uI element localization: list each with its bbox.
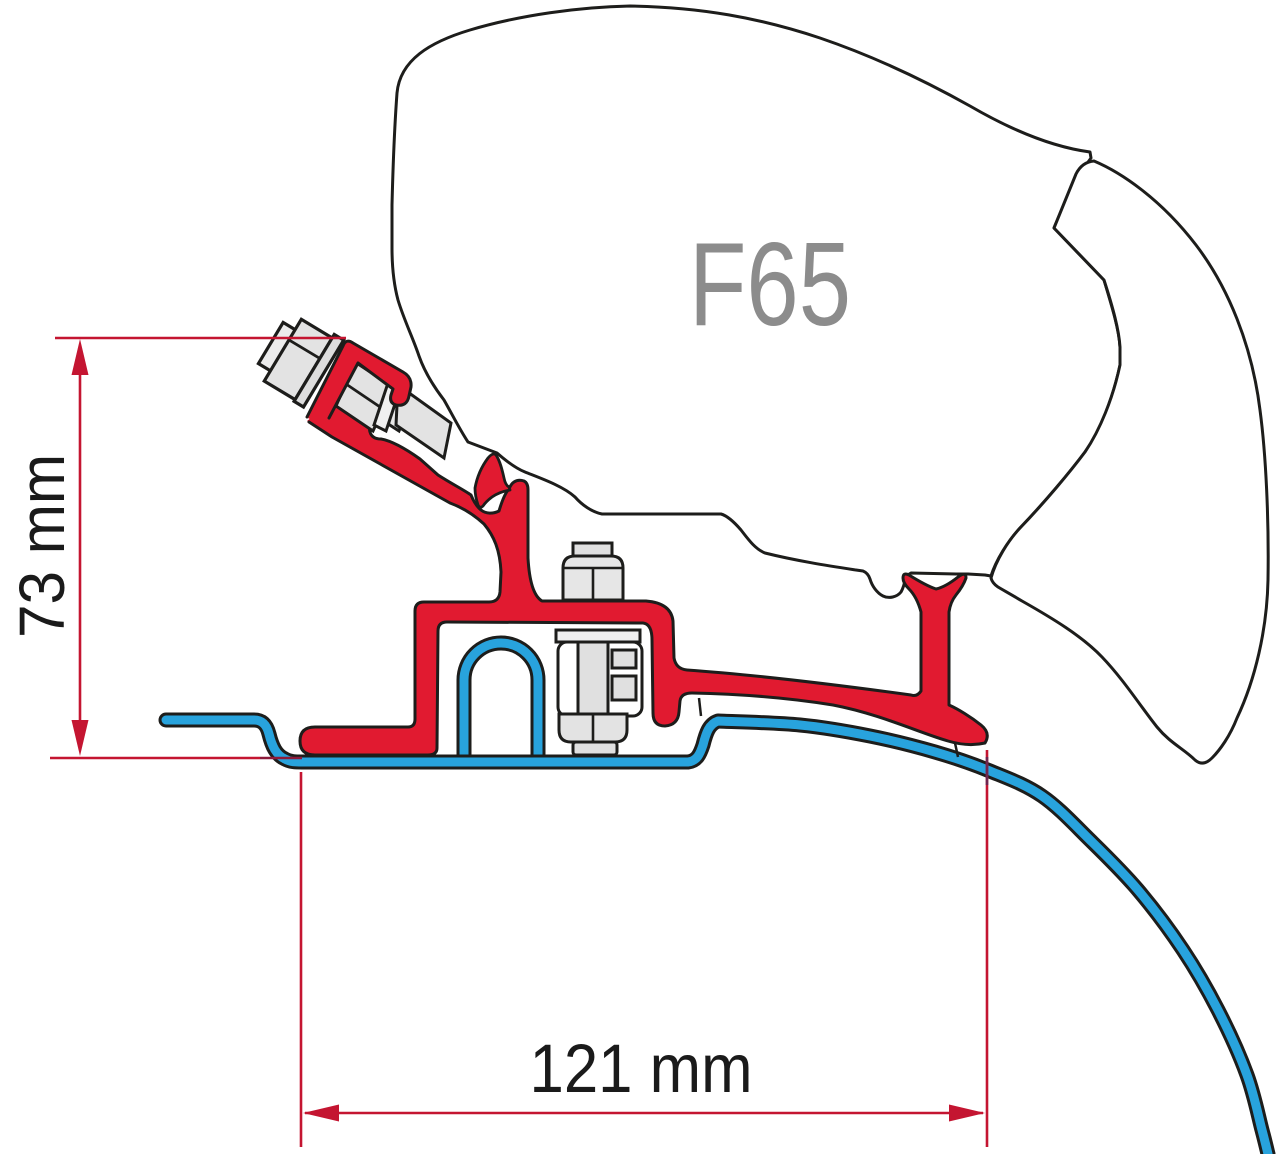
svg-text:121 mm: 121 mm xyxy=(530,1030,753,1107)
svg-text:73 mm: 73 mm xyxy=(6,454,78,638)
svg-text:F65: F65 xyxy=(689,218,851,351)
